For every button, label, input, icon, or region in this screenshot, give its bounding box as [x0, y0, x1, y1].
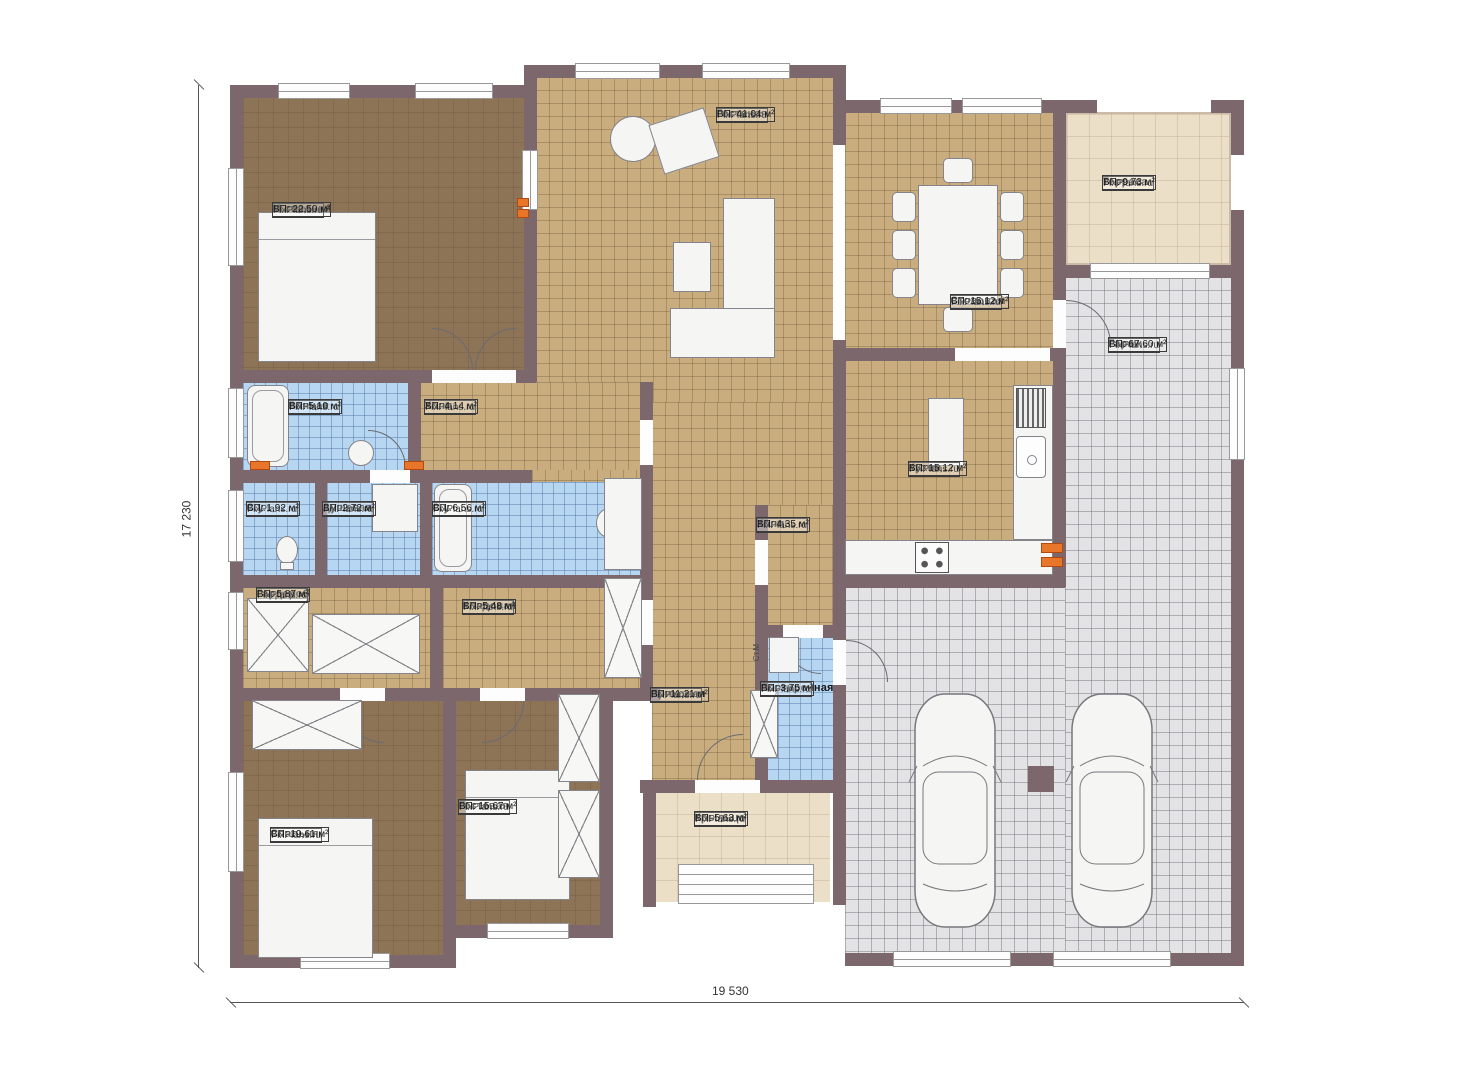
window	[228, 772, 244, 872]
chair	[1000, 192, 1024, 222]
door-opening	[370, 470, 410, 483]
dimension-line-horizontal	[230, 1002, 1244, 1003]
floor-plan: Ст.М Гостиная FixPlans.ru ВП: 41,04 м² М…	[0, 0, 1474, 1080]
room-area: ВП: 11,21 м²	[650, 687, 709, 702]
door-opening	[480, 688, 525, 701]
washer-label: Ст.М	[752, 644, 761, 661]
sink	[1016, 436, 1046, 478]
chair	[943, 158, 973, 183]
window	[228, 592, 244, 650]
closet	[604, 478, 642, 570]
floor-hall-1	[420, 382, 640, 470]
room-area: ВП: 67,60 м²	[1108, 337, 1167, 352]
wall	[408, 382, 421, 470]
shower-tray	[372, 484, 418, 532]
radiator	[250, 461, 270, 470]
wall	[1053, 100, 1066, 277]
dining-table	[918, 185, 998, 305]
radiator	[517, 209, 529, 218]
door-opening	[695, 780, 760, 793]
wall	[430, 587, 443, 688]
room-area: ВП: 4,35 м²	[756, 517, 810, 532]
bed	[258, 212, 376, 362]
bathtub	[247, 385, 289, 467]
toilet	[276, 536, 298, 564]
car-icon	[905, 688, 1005, 933]
floor-wc-1	[243, 482, 315, 575]
window	[487, 923, 569, 939]
wardrobe-x	[252, 700, 362, 750]
wardrobe-x	[750, 690, 778, 758]
dimension-label-height: 17 230	[179, 501, 193, 538]
room-area: ВП: 6,56 м²	[432, 501, 486, 516]
room-area: ВП: 3,75 м²	[760, 681, 814, 696]
wall	[600, 688, 613, 938]
chair	[943, 307, 973, 332]
room-area: ВП: 5,87 м²	[256, 587, 310, 602]
window	[228, 490, 244, 562]
room-area: ВП: 41,04 м²	[716, 107, 775, 122]
kitchen-counter	[845, 540, 1053, 575]
round-table	[610, 116, 656, 162]
garage-pillar	[1028, 766, 1054, 792]
wardrobe-x	[558, 694, 600, 782]
chair	[892, 268, 916, 298]
car-icon	[1062, 688, 1162, 933]
chair	[1000, 230, 1024, 260]
radiator	[1041, 557, 1063, 567]
door-opening	[1053, 300, 1066, 348]
window	[1229, 368, 1245, 460]
room-area: ВП: 5,48 м²	[462, 599, 516, 614]
stairs	[678, 864, 814, 904]
wall	[420, 482, 432, 575]
garage-door	[893, 951, 1011, 967]
door-opening	[640, 420, 653, 465]
wall	[443, 688, 456, 938]
radiator	[517, 198, 529, 207]
dimension-label-width: 19 530	[712, 984, 749, 998]
dimension-line-vertical	[198, 85, 199, 968]
toilet	[280, 562, 294, 570]
room-area: ВП: 4,14 м²	[424, 399, 478, 414]
bathtub	[434, 484, 472, 572]
room-area: ВП: 22,50 м²	[272, 202, 331, 217]
radiator	[1041, 543, 1063, 553]
wardrobe-x	[312, 614, 420, 674]
wardrobe-x	[247, 598, 309, 672]
window	[702, 63, 790, 79]
room-area: ВП: 1,92 м²	[246, 501, 300, 516]
wall	[1211, 100, 1244, 113]
appliance	[1016, 388, 1046, 428]
room-area: ВП: 15,12 м²	[908, 461, 967, 476]
door-opening	[755, 540, 768, 585]
radiator	[404, 461, 424, 470]
window	[228, 168, 244, 266]
window	[880, 98, 952, 114]
garage-door	[1053, 951, 1171, 967]
room-area: ВП: 2,72 м²	[322, 501, 376, 516]
chair	[892, 230, 916, 260]
door-opening	[833, 640, 846, 685]
wall	[1065, 100, 1097, 113]
wall	[1231, 210, 1244, 277]
window	[278, 83, 350, 99]
stove	[915, 542, 949, 573]
washing-machine	[769, 637, 799, 673]
wardrobe-x	[604, 578, 642, 678]
door-opening	[432, 370, 516, 383]
wall	[315, 482, 327, 575]
dimension-tick	[194, 79, 205, 90]
room-area: ВП: 15,67 м²	[458, 799, 517, 814]
window	[1090, 263, 1210, 279]
room-area: ВП: 9,73 м²	[1102, 175, 1156, 190]
window	[228, 388, 244, 458]
wall	[524, 65, 537, 382]
window	[575, 63, 660, 79]
coffee-table	[673, 242, 711, 292]
room-area: ВП: 5,10 м²	[288, 399, 342, 414]
door-opening	[955, 348, 1050, 361]
window	[415, 83, 493, 99]
room-area: ВП: 5,63 м²	[694, 811, 748, 826]
room-area: ВП: 19,61 м²	[270, 827, 329, 842]
bed	[465, 770, 570, 900]
room-area: ВП: 15,12 м²	[950, 294, 1009, 309]
wall	[643, 780, 656, 907]
floor-hall-cross	[652, 402, 833, 505]
sofa	[670, 308, 775, 358]
window	[962, 98, 1042, 114]
dimension-tick	[194, 962, 205, 973]
wardrobe-x	[558, 790, 600, 878]
wall	[443, 925, 456, 968]
wall	[845, 575, 1065, 588]
kitchen-island	[928, 398, 964, 466]
washbasin	[348, 440, 374, 466]
chair	[892, 192, 916, 222]
